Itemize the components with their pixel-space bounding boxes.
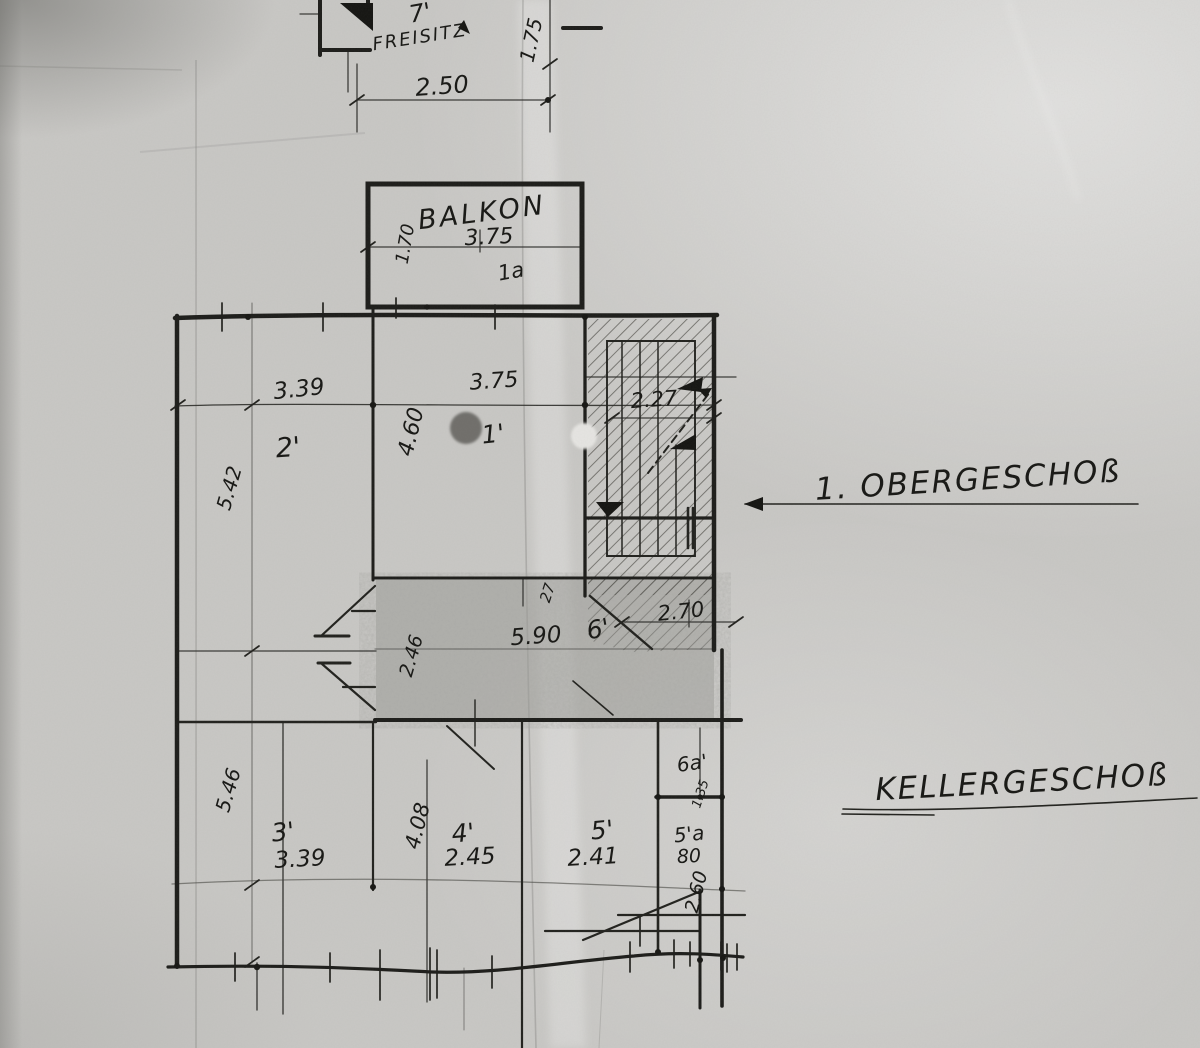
dim-kg-135: 1.35 — [690, 778, 711, 810]
dim-top-width: 2.50 — [415, 72, 470, 100]
dim-og-460: 4.60 — [395, 406, 428, 459]
obergeschoss-label: 1. OBERGESCHOß — [814, 456, 1122, 506]
room7-number: 7' — [407, 0, 433, 27]
dim-kg-241: 2.41 — [567, 845, 619, 871]
dim-top-side: 1.75 — [517, 16, 546, 64]
dim-kg-339: 3.39 — [274, 847, 326, 873]
dim-kg-408: 4.08 — [402, 801, 434, 851]
dim-og-375: 3.75 — [469, 369, 519, 394]
room7-name: FREISITZ — [371, 22, 468, 55]
dim-kg-546: 5.46 — [212, 766, 243, 814]
room1-number: 1' — [480, 420, 505, 447]
room3-number: 3' — [270, 818, 295, 845]
scanned-floor-plan: 7' FREISITZ 2.50 1.75 BALKON 3.75 1a 1.7… — [0, 0, 1200, 1048]
room6a-number: 6a' — [676, 751, 709, 775]
dim-og-339: 3.39 — [272, 376, 325, 404]
room4-number: 4' — [451, 820, 476, 847]
dim-kg-260: 2.60 — [683, 869, 712, 915]
balkon-room-number: 1a — [496, 259, 525, 284]
dim-band-27: 27 — [538, 582, 558, 605]
dim-og-542: 5.42 — [213, 464, 244, 512]
plan-labels: 7' FREISITZ 2.50 1.75 BALKON 3.75 1a 1.7… — [0, 0, 1200, 1048]
room6-number: 6' — [585, 615, 612, 644]
dim-kg-80: 80 — [676, 847, 701, 867]
dim-band-246: 2.46 — [397, 633, 427, 679]
dim-band-270: 2.70 — [657, 599, 706, 625]
room5a-number: 5'a — [673, 822, 705, 845]
kellergeschoss-label: KELLERGESCHOß — [875, 760, 1170, 806]
balkon-width: 3.75 — [464, 226, 514, 251]
dim-stair-227: 2.27 — [630, 388, 678, 412]
dim-kg-245: 2.45 — [444, 845, 496, 871]
balkon-depth: 1.70 — [394, 223, 419, 266]
room2-number: 2' — [275, 434, 301, 463]
dim-band-590: 5.90 — [510, 624, 563, 651]
room5-number: 5' — [590, 817, 615, 844]
